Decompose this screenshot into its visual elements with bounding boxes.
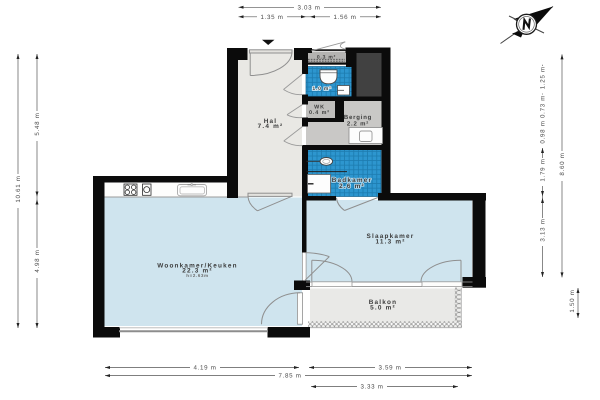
svg-text:3.33 m: 3.33 m: [360, 384, 383, 391]
svg-text:2.2 m²: 2.2 m²: [347, 120, 369, 127]
svg-text:1.0 m²: 1.0 m²: [312, 86, 331, 92]
svg-text:4.98 m: 4.98 m: [34, 249, 41, 272]
svg-text:5.48 m: 5.48 m: [34, 112, 41, 135]
svg-text:1.79 m: 1.79 m: [540, 158, 547, 181]
svg-text:3.03 m: 3.03 m: [297, 4, 320, 11]
svg-text:7.85 m: 7.85 m: [278, 373, 301, 380]
svg-text:2.6 m²: 2.6 m²: [339, 183, 365, 190]
svg-text:3.59 m: 3.59 m: [378, 365, 401, 372]
svg-text:1.56 m: 1.56 m: [333, 14, 356, 21]
svg-text:0.4 m²: 0.4 m²: [309, 110, 330, 116]
svg-text:0.73 m: 0.73 m: [540, 95, 547, 118]
svg-text:1.35 m: 1.35 m: [260, 14, 283, 21]
svg-text:0.3 m²: 0.3 m²: [317, 55, 336, 61]
svg-text:10.61 m: 10.61 m: [15, 175, 22, 202]
svg-text:h=2.63m: h=2.63m: [186, 273, 209, 278]
svg-text:7.4 m²: 7.4 m²: [258, 123, 284, 130]
svg-text:3.13 m: 3.13 m: [540, 218, 547, 241]
svg-text:1.25 m: 1.25 m: [540, 66, 547, 89]
svg-text:5.0 m²: 5.0 m²: [370, 305, 396, 312]
svg-text:0.98 m: 0.98 m: [540, 120, 547, 143]
svg-text:8.60 m: 8.60 m: [559, 152, 566, 175]
svg-text:1.50 m: 1.50 m: [569, 289, 576, 312]
svg-text:11.3 m²: 11.3 m²: [375, 238, 405, 245]
svg-text:Berging: Berging: [344, 114, 372, 121]
svg-text:4.19 m: 4.19 m: [193, 365, 216, 372]
